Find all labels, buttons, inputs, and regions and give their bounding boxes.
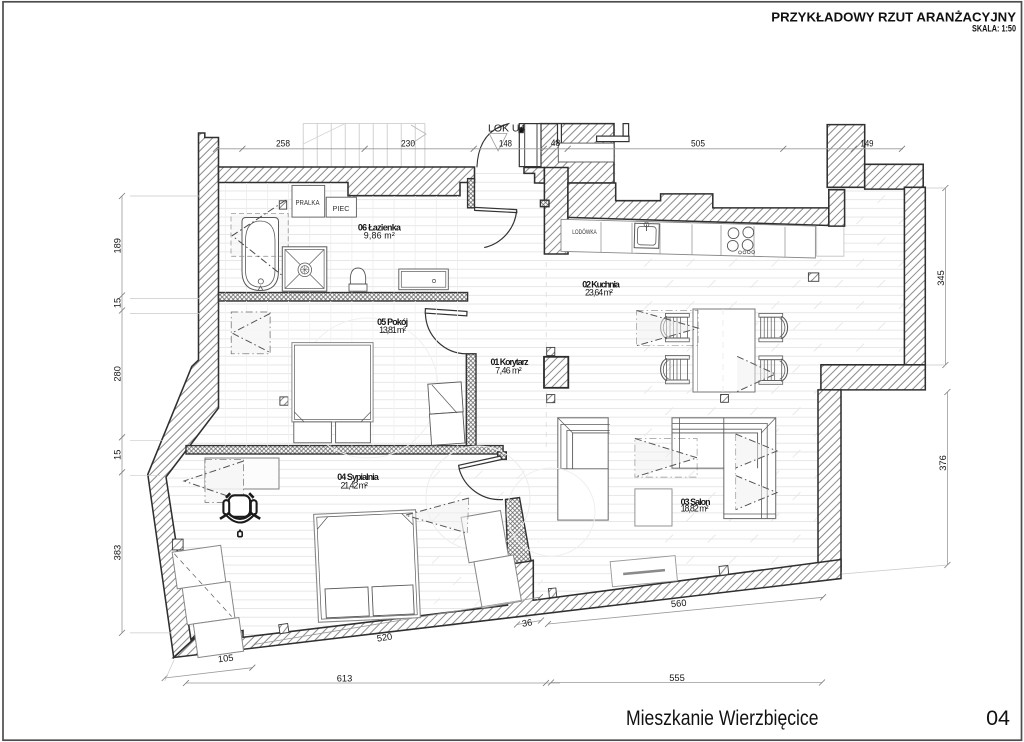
svg-text:18,82 m²: 18,82 m² [681,503,709,513]
svg-text:21,42 m²: 21,42 m² [340,480,368,490]
svg-text:189: 189 [113,238,123,254]
svg-text:9,86 m²: 9,86 m² [364,231,395,241]
svg-text:Mieszkanie Wierzbięcice: Mieszkanie Wierzbięcice [626,706,819,730]
svg-text:376: 376 [938,455,948,471]
svg-text:04: 04 [986,706,1010,730]
svg-text:PRZYKŁADOWY RZUT ARANŻACYJNY: PRZYKŁADOWY RZUT ARANŻACYJNY [771,10,1016,25]
svg-text:105: 105 [217,653,234,665]
svg-text:280: 280 [113,366,123,382]
svg-text:SKALA: 1:50: SKALA: 1:50 [972,24,1016,34]
svg-text:23,64 m²: 23,64 m² [585,287,613,297]
svg-text:13,81 m²: 13,81 m² [379,325,406,335]
svg-text:613: 613 [337,674,353,684]
svg-text:505: 505 [691,139,705,149]
svg-text:15: 15 [113,450,123,460]
svg-text:383: 383 [113,545,123,561]
svg-text:PRALKA: PRALKA [296,198,320,207]
svg-text:258: 258 [276,139,290,149]
svg-text:36: 36 [521,617,533,628]
svg-text:345: 345 [936,270,946,286]
svg-text:48: 48 [551,138,561,148]
svg-text:230: 230 [401,139,415,149]
svg-text:560: 560 [670,598,686,609]
svg-text:PIEC: PIEC [333,204,350,213]
svg-text:555: 555 [669,673,685,683]
svg-text:148: 148 [499,139,512,149]
svg-text:149: 149 [861,139,874,149]
svg-text:15: 15 [113,298,123,308]
svg-text:LOK U4: LOK U4 [488,123,526,135]
svg-text:LODÓWKA: LODÓWKA [572,227,597,236]
svg-text:7,46 m²: 7,46 m² [495,366,522,376]
